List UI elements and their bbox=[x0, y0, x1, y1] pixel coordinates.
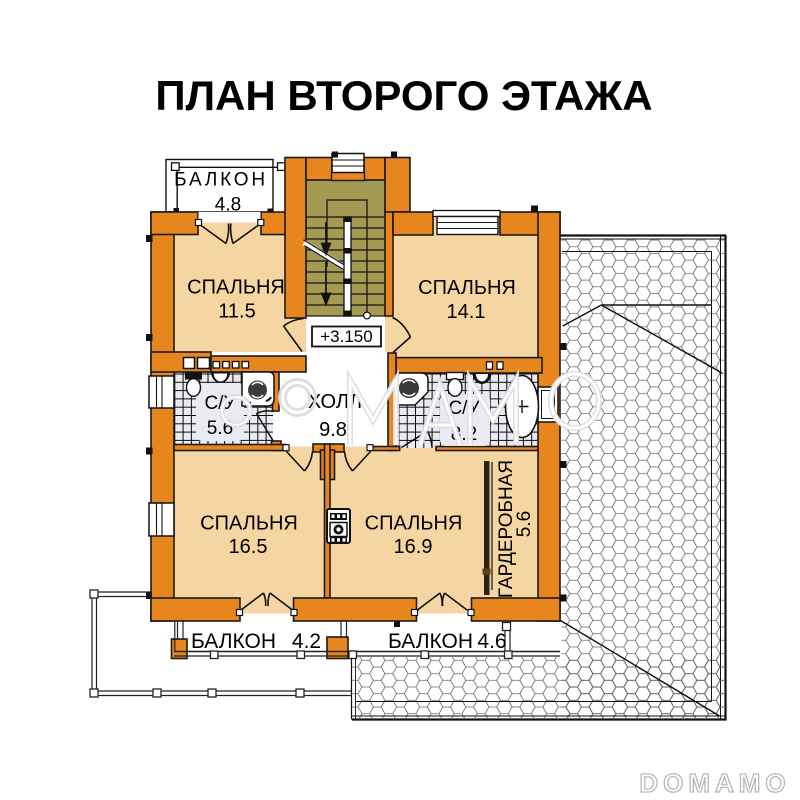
svg-text:СПАЛЬНЯ: СПАЛЬНЯ bbox=[187, 277, 285, 299]
svg-text:БАЛКОН: БАЛКОН bbox=[388, 630, 473, 653]
svg-text:ПЛАН ВТОРОГО ЭТАЖА: ПЛАН ВТОРОГО ЭТАЖА bbox=[155, 72, 652, 119]
svg-text:4.2: 4.2 bbox=[292, 630, 321, 653]
svg-text:11.5: 11.5 bbox=[218, 301, 255, 323]
svg-text:СПАЛЬНЯ: СПАЛЬНЯ bbox=[365, 513, 463, 535]
svg-text:DOMAMO: DOMAMO bbox=[639, 768, 790, 798]
svg-text:БАЛКОН: БАЛКОН bbox=[191, 630, 276, 653]
svg-text:СПАЛЬНЯ: СПАЛЬНЯ bbox=[418, 277, 516, 299]
svg-text:4.6: 4.6 bbox=[477, 630, 506, 653]
svg-text:16.5: 16.5 bbox=[229, 536, 268, 558]
svg-text:+3.150: +3.150 bbox=[320, 327, 372, 346]
svg-text:14.1: 14.1 bbox=[447, 301, 486, 323]
svg-text:5.6: 5.6 bbox=[514, 511, 535, 537]
svg-text:9.8: 9.8 bbox=[319, 419, 347, 441]
svg-text:16.9: 16.9 bbox=[394, 536, 433, 558]
svg-text:БАЛКОН: БАЛКОН bbox=[174, 170, 268, 191]
svg-text:СПАЛЬНЯ: СПАЛЬНЯ bbox=[200, 513, 298, 535]
